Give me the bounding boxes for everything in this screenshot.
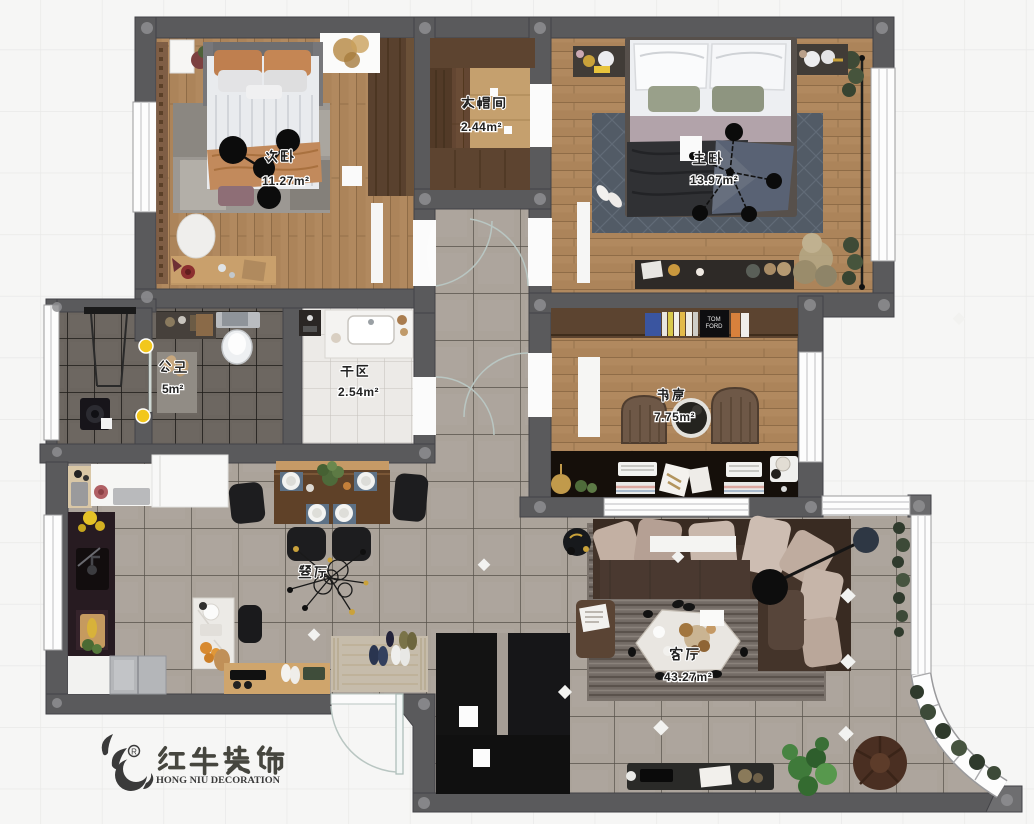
- svg-text:7.75m²: 7.75m²: [654, 410, 695, 424]
- svg-text:13.97m²: 13.97m²: [690, 173, 738, 187]
- svg-text:FORD: FORD: [706, 324, 724, 330]
- svg-text:11.27m²: 11.27m²: [262, 174, 310, 188]
- svg-text:43.27m²: 43.27m²: [664, 670, 712, 684]
- svg-text:5m²: 5m²: [162, 382, 183, 396]
- svg-text:HONG NIU DECORATION: HONG NIU DECORATION: [156, 775, 281, 785]
- svg-text:2.54m²: 2.54m²: [338, 385, 379, 399]
- svg-text:R: R: [131, 748, 137, 757]
- svg-text:TOM: TOM: [707, 317, 720, 323]
- svg-text:2.44m²: 2.44m²: [461, 120, 502, 134]
